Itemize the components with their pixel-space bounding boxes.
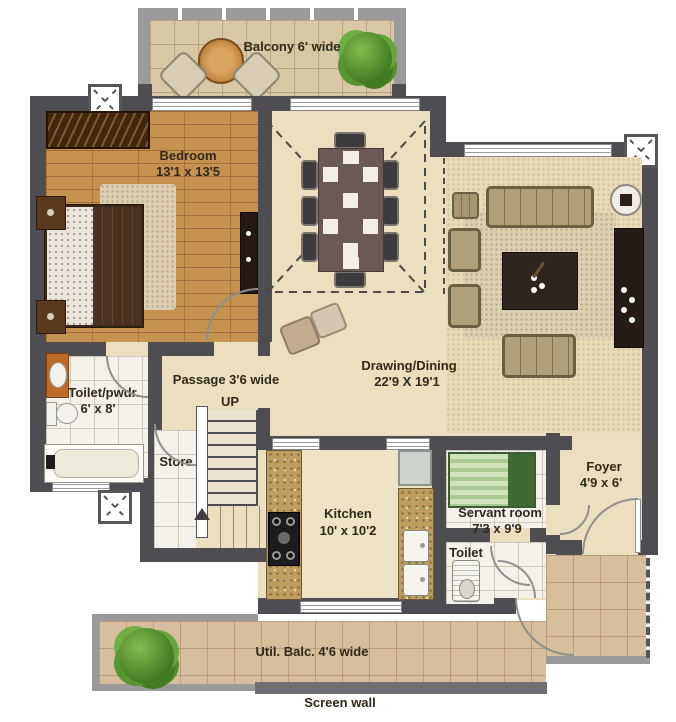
bathtub <box>44 444 144 483</box>
bed-blanket <box>93 207 141 325</box>
stairs-up-arrow-icon <box>194 508 210 520</box>
decor-stick <box>532 262 545 278</box>
util-balcony-label: Util. Balc. 4'6 wide <box>256 645 369 659</box>
drawing-dining-label: Drawing/Dining <box>361 359 456 373</box>
balcony-label: Balcony 6' wide <box>243 40 340 54</box>
servant-bed-blanket <box>508 454 534 506</box>
main-entrance-door-leaf <box>635 499 641 553</box>
dining-chair <box>301 160 318 190</box>
dining-table <box>318 148 384 272</box>
kitchen-fridge <box>398 450 432 486</box>
balcony-plant-icon <box>342 32 392 84</box>
decor-dot <box>539 283 545 289</box>
lamp-base <box>620 194 632 206</box>
drawing-room-window <box>464 144 612 157</box>
pouffe <box>452 192 479 219</box>
kitchen-door-opening <box>272 438 320 450</box>
balcony-left-wall <box>138 8 150 96</box>
sofa-two-seater <box>502 334 576 378</box>
column-x-icon <box>101 493 129 521</box>
faucet-dot <box>420 543 425 548</box>
washbasin <box>49 362 67 388</box>
wall-bedroom-bottom <box>258 342 270 356</box>
sofa-three-seater <box>486 186 594 228</box>
placemat <box>343 257 359 269</box>
balcony-right-wall <box>394 8 406 96</box>
bedroom-tv-unit <box>240 212 258 294</box>
toilet-pwdr-dim: 6' x 8' <box>80 402 115 416</box>
column-marker <box>98 490 132 524</box>
kitchen-window <box>300 601 402 613</box>
bedroom-wardrobe <box>46 111 150 149</box>
stairs-upper-flight <box>208 410 258 506</box>
stairs-up-label: UP <box>221 395 239 409</box>
decor-dot <box>246 231 251 236</box>
dining-chair <box>301 232 318 262</box>
screen-wall-strip <box>255 682 547 694</box>
bedroom-balcony-window <box>152 98 252 111</box>
drawing-dining-dim: 22'9 X 19'1 <box>374 375 439 389</box>
knob <box>47 313 54 320</box>
kitchen-dim: 10' x 10'2 <box>320 524 377 538</box>
screen-wall-dashed-edge <box>646 558 650 658</box>
wc-bowl <box>56 403 78 424</box>
servant-bed <box>448 452 536 508</box>
kitchen-label: Kitchen <box>324 507 372 521</box>
decor-dot <box>531 287 537 293</box>
dining-chair <box>382 160 399 190</box>
dining-chair <box>334 132 366 149</box>
util-balcony-wall-top <box>92 614 258 621</box>
wall-right <box>642 142 658 554</box>
placemat <box>323 167 338 182</box>
wall-foyer-bottom <box>556 540 582 555</box>
bedroom-nightstand <box>36 300 66 334</box>
tv-console <box>614 228 644 348</box>
util-balcony-wall-bottom-left <box>92 684 258 691</box>
decor-dot <box>621 287 627 293</box>
foyer-dim: 4'9 x 6' <box>580 476 622 490</box>
burner <box>286 551 295 560</box>
balcony-outer-wall <box>138 8 406 20</box>
placemat <box>323 219 338 234</box>
dining-balcony-window <box>290 98 420 111</box>
kitchen-stove <box>268 512 300 566</box>
servant-room-label: Servant room <box>458 506 542 520</box>
burner <box>272 517 281 526</box>
servant-toilet-label: Toilet <box>449 546 483 560</box>
coffee-table <box>502 252 578 310</box>
kitchen-sink <box>403 564 429 596</box>
placemat <box>363 167 378 182</box>
bathtub-inner <box>53 449 139 478</box>
dining-chair <box>301 196 318 226</box>
util-balcony-plant-icon <box>118 628 174 684</box>
decor-dot <box>621 307 627 313</box>
side-table-lamp <box>610 184 642 216</box>
armchair <box>448 228 481 272</box>
decor-dot <box>629 297 635 303</box>
passage-label: Passage 3'6 wide <box>173 373 279 387</box>
decor-dot <box>629 317 635 323</box>
bathtub-faucet <box>46 455 55 469</box>
kitchen-sink <box>403 530 429 562</box>
washbasin-counter <box>46 353 69 398</box>
squat-toilet <box>452 560 480 602</box>
bedroom-dim: 13'1 x 13'5 <box>156 165 220 179</box>
placemat <box>343 193 358 208</box>
foyer-label: Foyer <box>586 460 621 474</box>
stove-knob <box>278 532 290 544</box>
exterior-gap <box>446 111 642 142</box>
squat-pan <box>459 579 475 599</box>
servant-room-dim: 7'3 x 9'9 <box>472 522 522 536</box>
util-balcony-wall-bottom-right <box>546 656 650 664</box>
dining-chair <box>334 271 366 288</box>
burner <box>286 517 295 526</box>
passage-dashed-line <box>443 158 445 294</box>
placemat <box>343 243 358 258</box>
decor-dot <box>246 257 251 262</box>
placemat <box>343 151 359 164</box>
wall-servant-bottom <box>530 528 546 542</box>
bedroom-nightstand <box>36 196 66 230</box>
wall-foyer-bottom <box>638 540 658 555</box>
knob <box>47 209 54 216</box>
placemat <box>363 219 378 234</box>
kitchen-door-opening <box>386 438 430 450</box>
util-balcony-wall-left <box>92 614 99 690</box>
dining-chair <box>382 232 399 262</box>
wall-kitchen-servant <box>432 436 446 612</box>
screen-wall-label: Screen wall <box>304 696 376 710</box>
armchair <box>448 284 481 328</box>
faucet-dot <box>420 577 425 582</box>
dining-chair <box>382 196 399 226</box>
bedroom-label: Bedroom <box>159 149 216 163</box>
burner <box>272 551 281 560</box>
floor-plan: Bedroom 13'1 x 13'5 <box>0 0 676 722</box>
